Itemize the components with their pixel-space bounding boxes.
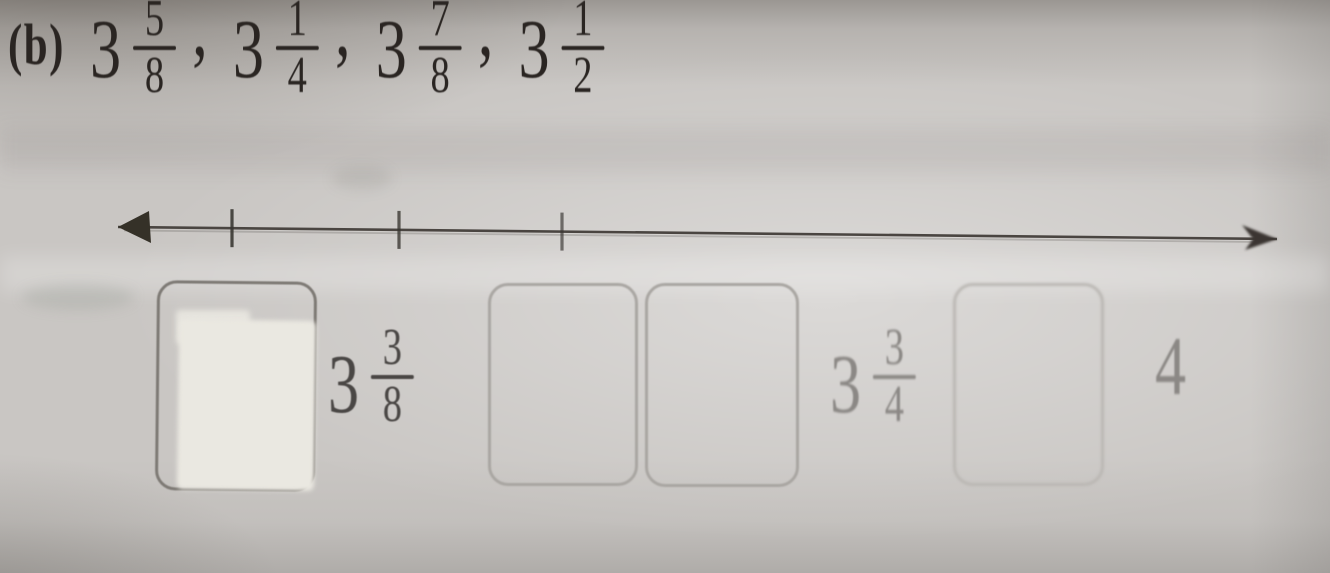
mixed-number: 312	[519, 0, 605, 100]
fraction: 12	[561, 0, 604, 100]
comma-separator: ,	[192, 0, 208, 70]
denominator: 4	[276, 53, 319, 100]
mixed-number: 358	[90, 0, 176, 100]
numerator: 1	[276, 0, 319, 43]
numerator: 1	[561, 0, 604, 43]
mixed-number: 378	[376, 0, 462, 100]
numerator: 3	[371, 325, 414, 372]
line-shaft	[118, 227, 1277, 239]
line-ghost	[124, 231, 1257, 243]
faint-smudge	[332, 166, 392, 190]
mixed-number: 314	[233, 0, 319, 100]
comma-separator: ,	[335, 0, 351, 70]
denominator: 8	[419, 53, 462, 100]
denominator: 8	[133, 53, 176, 100]
answer-box	[488, 283, 638, 486]
answer-box	[155, 280, 317, 492]
denominator: 2	[561, 53, 604, 100]
number-label: 4	[1155, 325, 1186, 409]
worksheet-photo: (b) 358,314,378,312 3383344	[0, 0, 1330, 573]
denominator: 4	[873, 382, 916, 429]
mixed-number: 334	[830, 300, 916, 429]
numerator: 7	[419, 0, 462, 43]
whole-number: 3	[90, 8, 121, 92]
ink-bleed-smudge	[22, 284, 134, 310]
answer-box	[645, 283, 799, 487]
whole-number: 3	[328, 343, 359, 427]
whole-number: 3	[376, 8, 407, 92]
whole-number: 3	[233, 8, 264, 92]
whole-number: 3	[519, 8, 550, 92]
problem-label: (b)	[8, 16, 65, 74]
problem-heading: (b) 358,314,378,312	[8, 0, 604, 100]
comma-separator: ,	[478, 0, 494, 70]
numerator: 5	[133, 0, 176, 43]
fraction: 78	[419, 0, 462, 100]
fraction: 58	[133, 0, 176, 100]
photo-band-dark	[0, 128, 1330, 172]
arrow-left-icon	[118, 211, 151, 243]
answer-box	[953, 283, 1104, 486]
fraction: 38	[371, 325, 414, 429]
mixed-number: 338	[328, 300, 414, 429]
arrow-right-icon	[1242, 225, 1277, 250]
numerator: 3	[873, 325, 916, 372]
denominator: 8	[371, 382, 414, 429]
whole-number: 3	[830, 343, 861, 427]
fraction: 14	[276, 0, 319, 100]
fraction: 34	[873, 325, 916, 429]
